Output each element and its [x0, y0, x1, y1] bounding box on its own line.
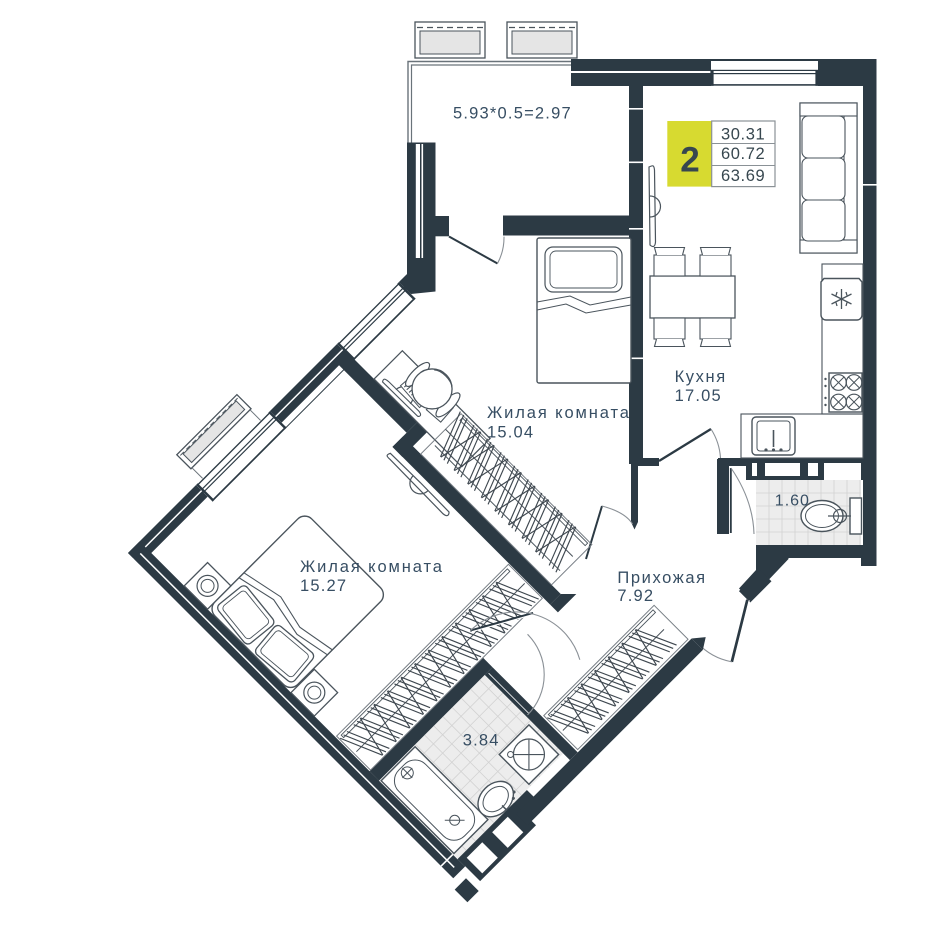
svg-text:15.04: 15.04: [487, 424, 534, 442]
svg-text:Прихожая: Прихожая: [617, 569, 706, 587]
svg-text:Жилая комната: Жилая комната: [300, 558, 444, 576]
svg-text:Кухня: Кухня: [675, 368, 727, 386]
svg-text:17.05: 17.05: [675, 387, 722, 405]
svg-text:5.93*0.5=2.97: 5.93*0.5=2.97: [453, 104, 572, 122]
svg-text:7.92: 7.92: [617, 587, 654, 605]
svg-text:Жилая комната: Жилая комната: [487, 404, 631, 422]
svg-text:60.72: 60.72: [721, 145, 765, 163]
svg-text:15.27: 15.27: [300, 577, 347, 595]
svg-text:1.60: 1.60: [775, 493, 810, 510]
svg-text:63.69: 63.69: [721, 167, 765, 185]
svg-text:30.31: 30.31: [721, 126, 765, 144]
svg-text:2: 2: [680, 140, 699, 179]
svg-text:3.84: 3.84: [463, 731, 500, 749]
